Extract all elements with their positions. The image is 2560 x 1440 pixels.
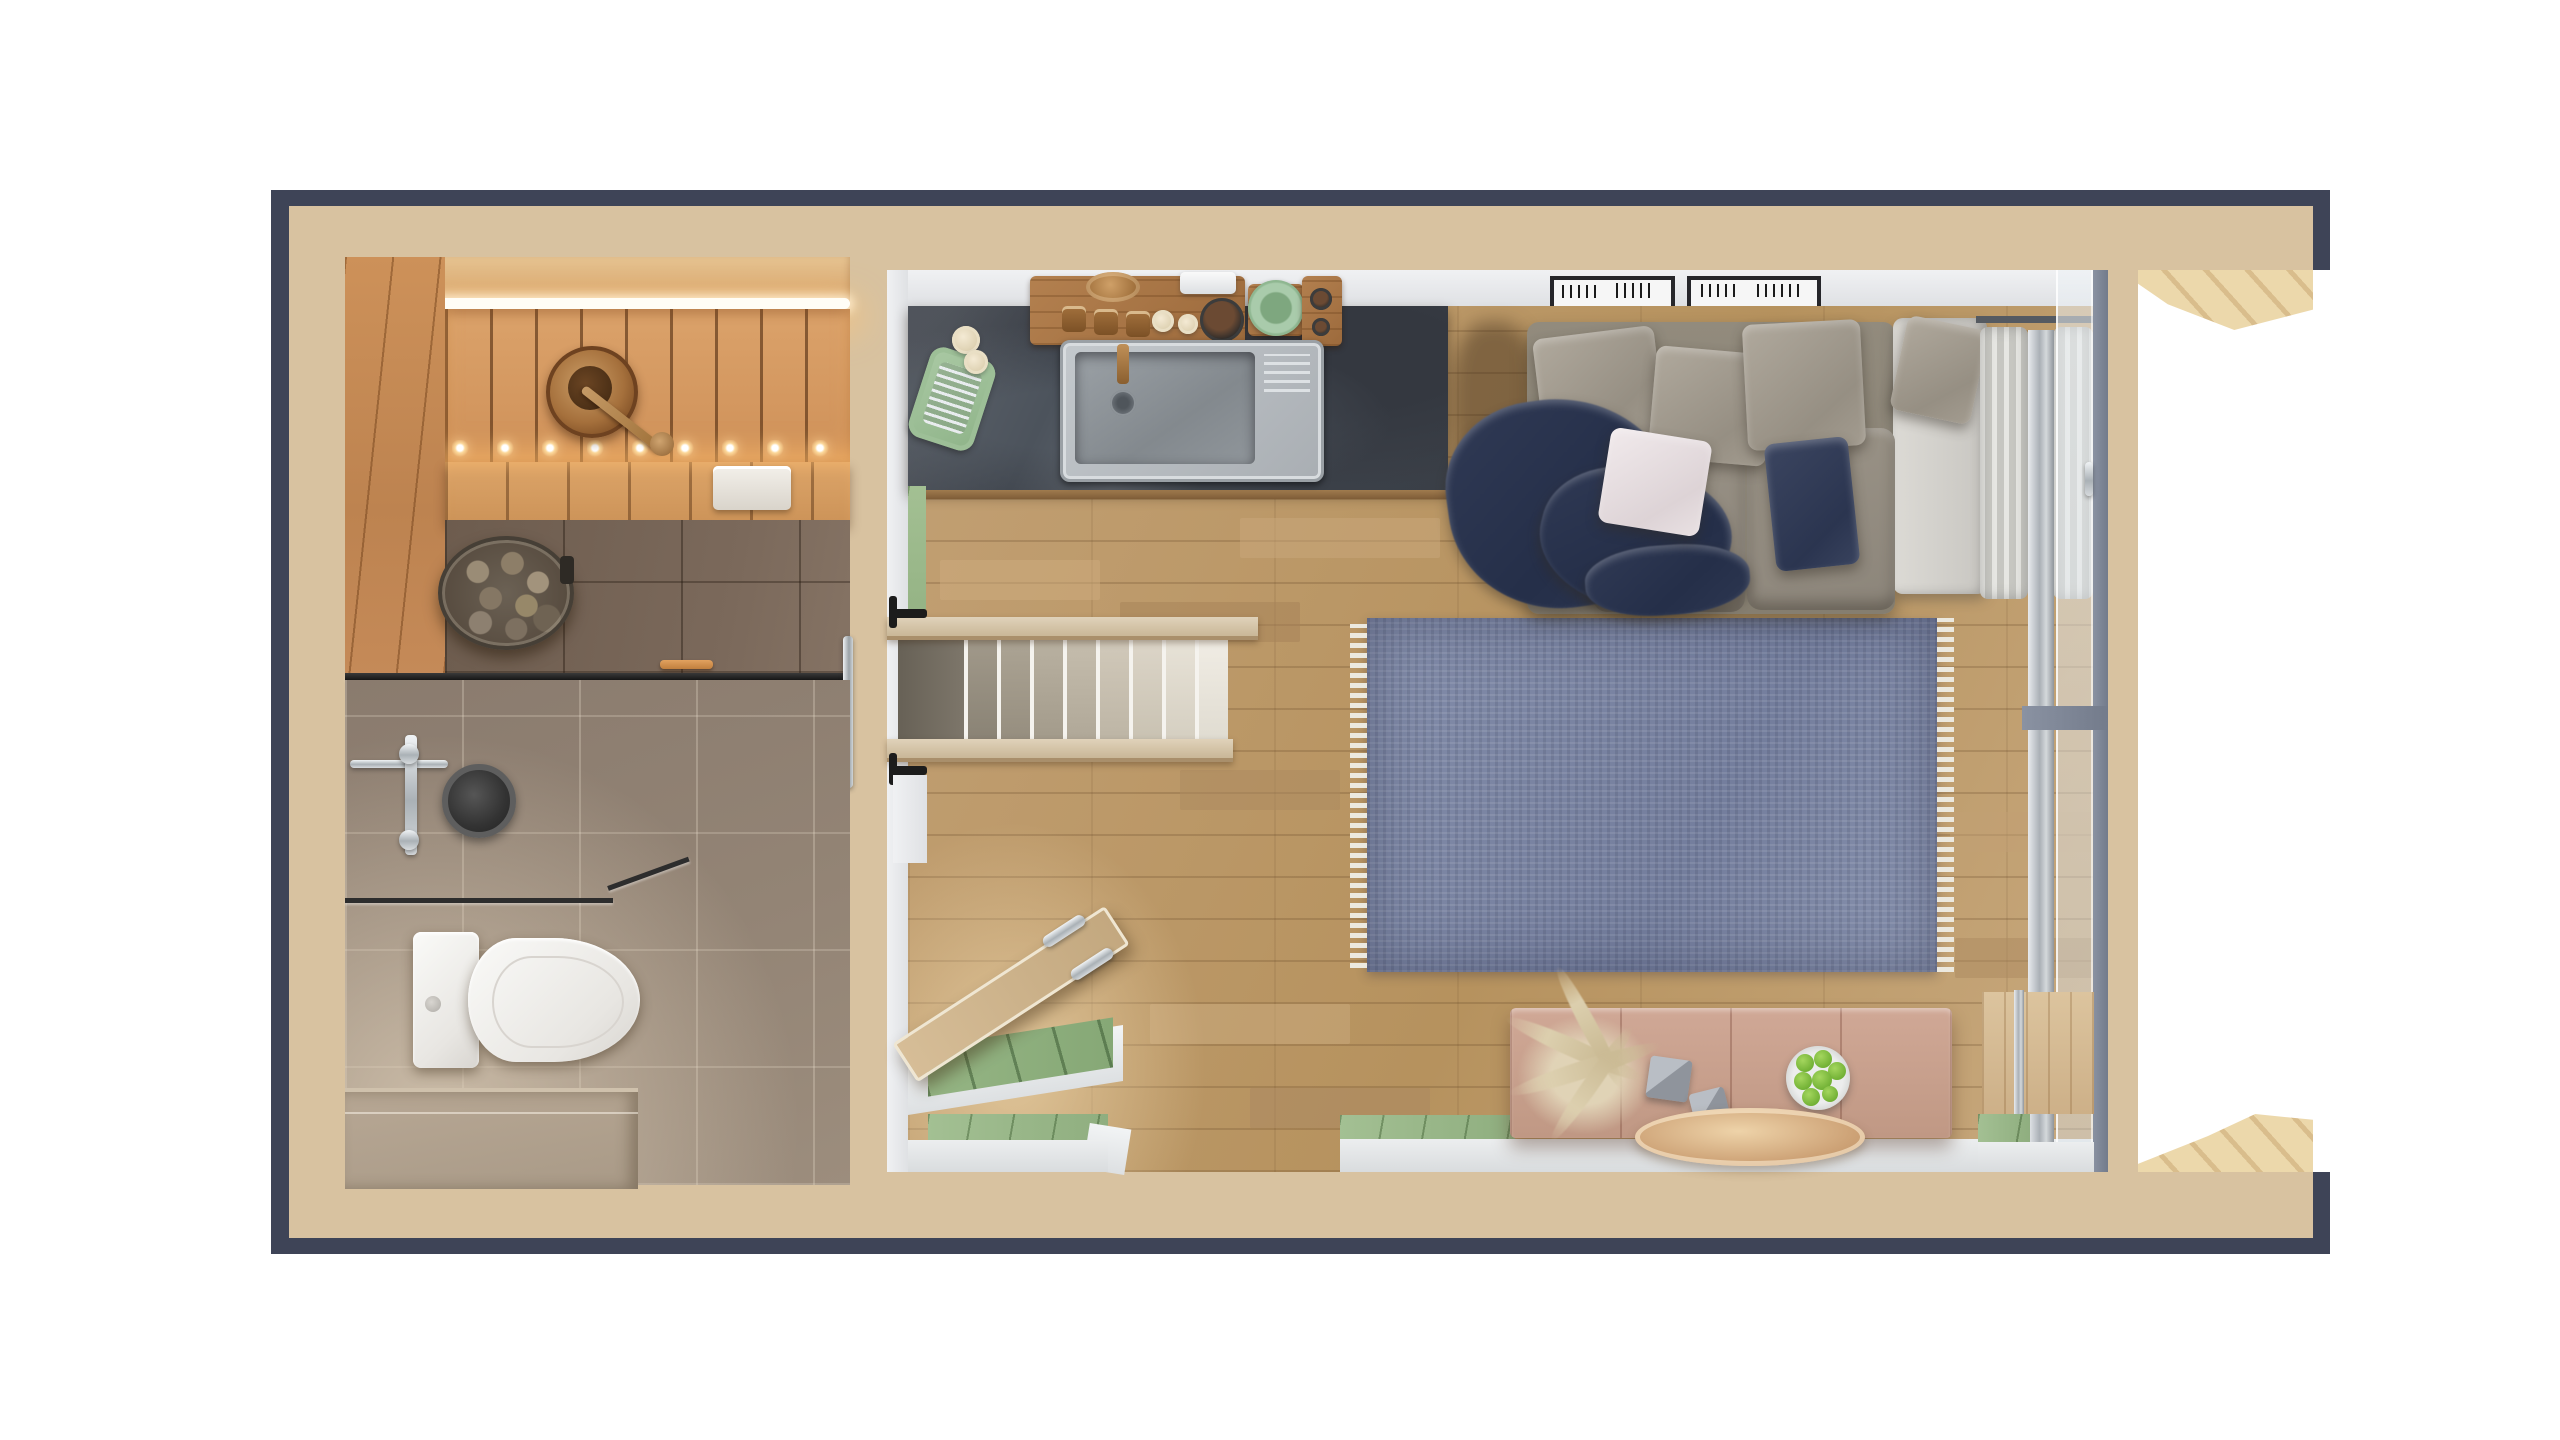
sauna-towel (713, 466, 791, 510)
wood-plate (1086, 272, 1140, 302)
wall-bottom-right-block (2138, 1172, 2313, 1238)
apple (1802, 1088, 1820, 1106)
sauna-led-strip (430, 298, 850, 309)
glass-door-handle (2085, 462, 2093, 496)
sauna-glass-partition (345, 673, 850, 680)
vent-hatch (1616, 283, 1656, 298)
stair-step (1195, 636, 1228, 739)
handrail-bracket (889, 766, 927, 775)
sauna-towel-bar-upper (660, 660, 713, 669)
navy-pillow (1764, 436, 1861, 572)
curtain-panel-left (1980, 327, 2028, 599)
stair-step (1129, 636, 1162, 739)
wall-outer-top (271, 190, 2330, 206)
stair-step (1162, 636, 1195, 739)
rug-fringe-right (1937, 618, 1954, 972)
sofa-back-pillow (1742, 319, 1866, 451)
wall-outer-stub-topright (2313, 190, 2330, 270)
white-pillow (1597, 427, 1713, 538)
vent-hatch (1701, 284, 1739, 297)
area-rug (1367, 618, 1937, 972)
apple (1822, 1086, 1838, 1102)
floor-plank (1180, 770, 1340, 810)
rain-shower-head (442, 764, 516, 838)
stair-step (997, 636, 1030, 739)
spice-jar (1094, 309, 1118, 335)
deck-strip-bottom-left (928, 1114, 1108, 1142)
shower-glass-screen (345, 898, 613, 903)
wall-outer-left (271, 190, 289, 1254)
shower-knob-top (399, 744, 419, 764)
stair-handrail-bottom (887, 739, 1233, 762)
floorplan-canvas (0, 0, 2560, 1440)
spice-jar (1062, 306, 1086, 332)
copper-tray (1635, 1108, 1865, 1166)
floor-plank (1240, 518, 1440, 558)
stair-step (964, 636, 997, 739)
handrail-bracket (889, 609, 927, 618)
staircase (964, 636, 1228, 739)
stair-step (1030, 636, 1063, 739)
terrace-deck-bottom (2138, 1114, 2313, 1172)
stair-step (1096, 636, 1129, 739)
kitchen-scale (1180, 272, 1236, 294)
entry-wall-segment (893, 775, 927, 863)
dish-rack (1264, 354, 1310, 392)
rug-fringe-left (1350, 624, 1367, 968)
bathroom-step (345, 1088, 638, 1189)
deck-strip-bottom-mid (1340, 1115, 1515, 1139)
shower-knob-bottom (399, 830, 419, 850)
stair-handrail-top (887, 617, 1258, 640)
sliding-door-leaf (1982, 992, 2094, 1114)
toilet-flush-button (425, 996, 441, 1012)
apple (1796, 1054, 1814, 1072)
terrace-deck-top (2138, 270, 2313, 330)
utensil-item (1310, 288, 1332, 310)
cup (1178, 314, 1198, 334)
spice-jar (1126, 311, 1150, 337)
small-bowl (964, 350, 988, 374)
sauna-wood-wall (345, 257, 445, 678)
glass-wall-mullion (2022, 706, 2108, 730)
deck-strip-door (1978, 1114, 2030, 1144)
coffee-grinder (1200, 298, 1244, 342)
cup (1152, 310, 1174, 332)
sink-basin (1075, 352, 1255, 464)
green-plate (1248, 280, 1304, 336)
concrete-cube (1645, 1055, 1692, 1102)
vent-hatch (1562, 285, 1596, 298)
wall-top-right-block (2138, 206, 2313, 270)
vent-hatch (1757, 284, 1799, 297)
sauna-heater-handle (560, 556, 574, 584)
sink-drain (1110, 390, 1136, 416)
stair-step (1063, 636, 1096, 739)
utensil-item (1312, 318, 1330, 336)
sauna-ladle-cup (650, 432, 674, 456)
toilet-seat-line (492, 956, 624, 1048)
faucet (1117, 344, 1129, 384)
kitchen-cabinet-front (908, 490, 1448, 499)
stair-landing (898, 636, 964, 739)
sauna-stone-heater (438, 536, 574, 650)
wall-outer-bottom (271, 1238, 2330, 1254)
window-sill-bottom-left (908, 1140, 1108, 1172)
sliding-door-edge (2014, 990, 2024, 1114)
wall-outer-stub-bottomright (2313, 1172, 2330, 1254)
door-threshold-right (1978, 1142, 2094, 1172)
floor-plank (940, 560, 1100, 600)
bathroom-step-edge (345, 1112, 638, 1114)
shower-arm (350, 760, 448, 768)
